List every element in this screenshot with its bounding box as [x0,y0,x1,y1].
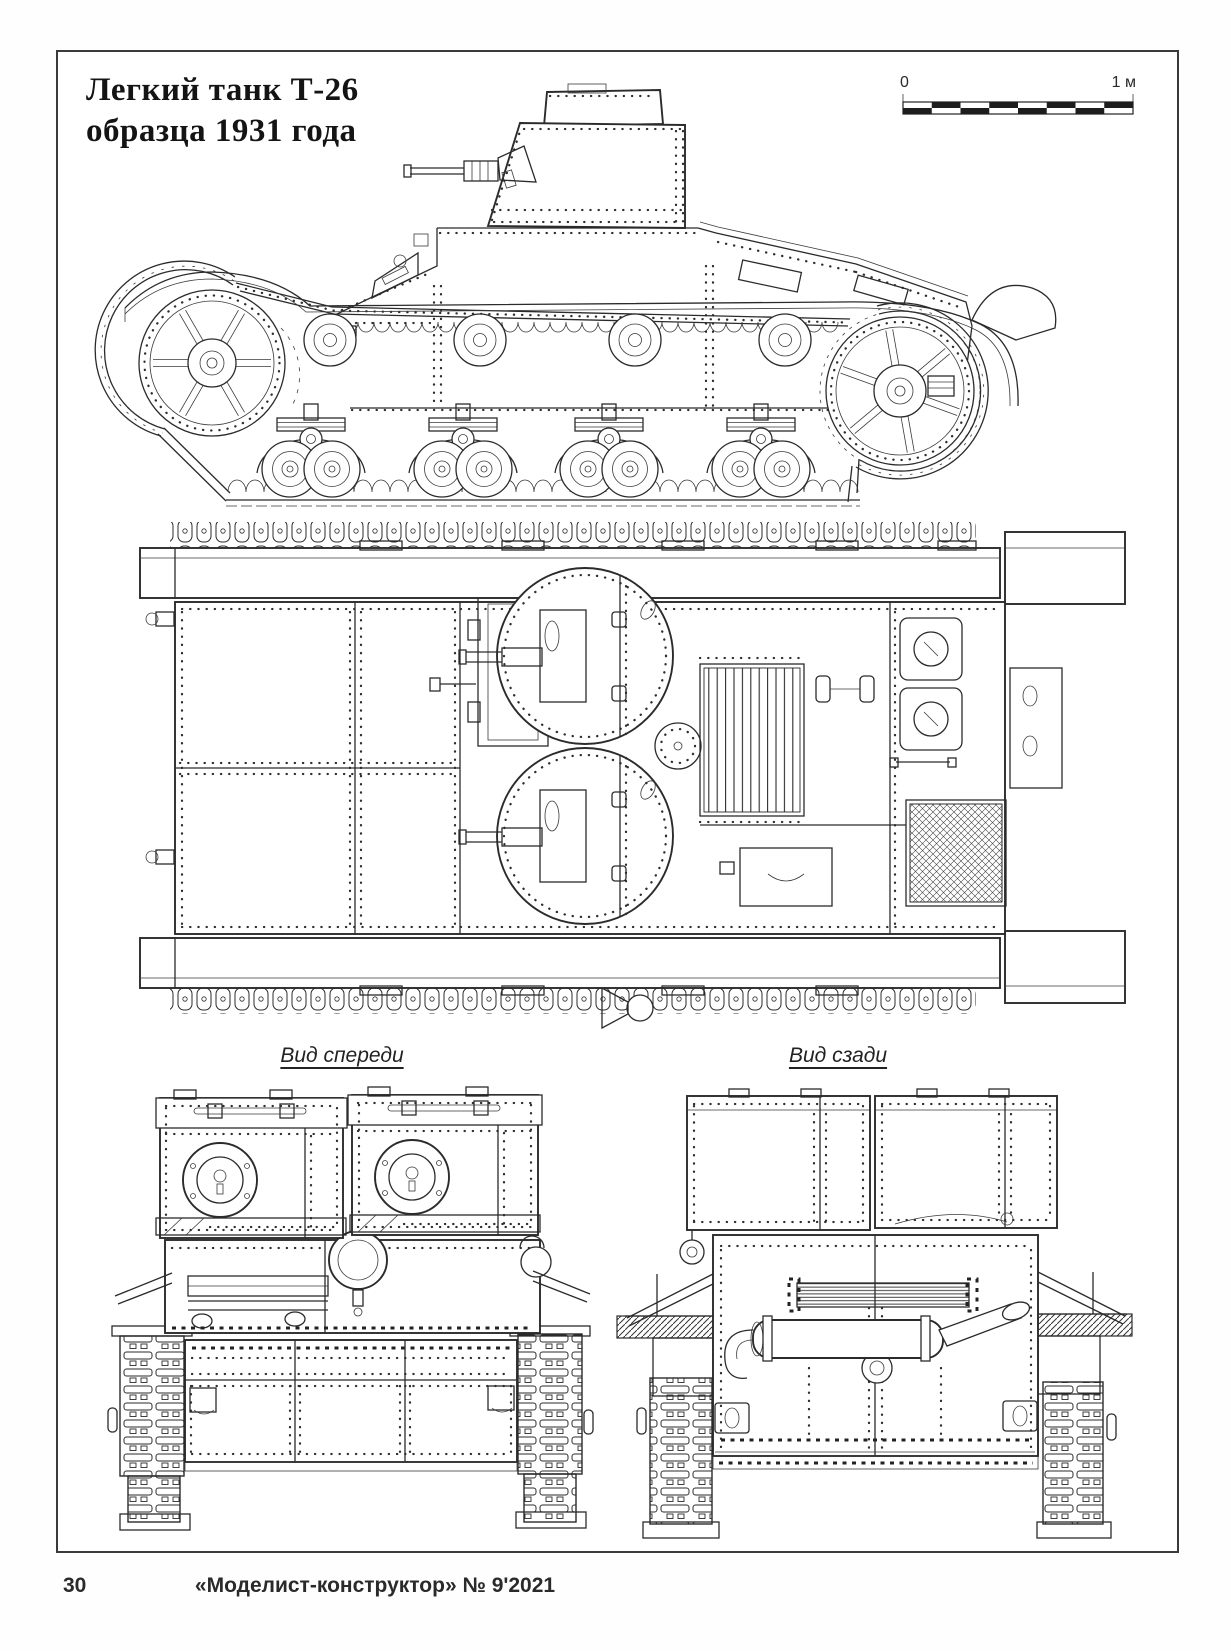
rear-view-drawing [595,1078,1135,1548]
front-right-track [510,1326,593,1528]
rear-left-track [637,1378,719,1538]
turret [404,84,685,228]
scale-one-meter-label: 1 м [1112,74,1136,92]
return-rollers [304,314,811,366]
top-view-drawing [100,518,1140,1018]
road-wheels [262,441,810,497]
front-view-label: Вид спереди [232,1044,452,1068]
top-track-strip-upper [170,522,976,548]
front-view-drawing [90,1078,610,1548]
front-left-turret [156,1090,347,1238]
rear-radiator-louver [789,1279,977,1311]
rear-right-track [1037,1382,1116,1538]
front-left-track [108,1326,192,1530]
side-view-drawing [100,76,1020,516]
top-track-strip-lower [170,988,976,1014]
front-idler-wheel [139,290,300,436]
magazine-credit: «Моделист-конструктор» № 9'2021 [160,1574,590,1598]
rear-right-turret [875,1089,1057,1228]
rear-view-label: Вид сзади [728,1044,948,1068]
magazine-page: Легкий танк Т-26 образца 1931 года 0 1 м [0,0,1231,1651]
top-central-hatch [655,723,701,769]
page-number: 30 [63,1574,86,1598]
rear-sprocket-wheel [820,311,980,471]
front-right-turret [348,1087,542,1235]
